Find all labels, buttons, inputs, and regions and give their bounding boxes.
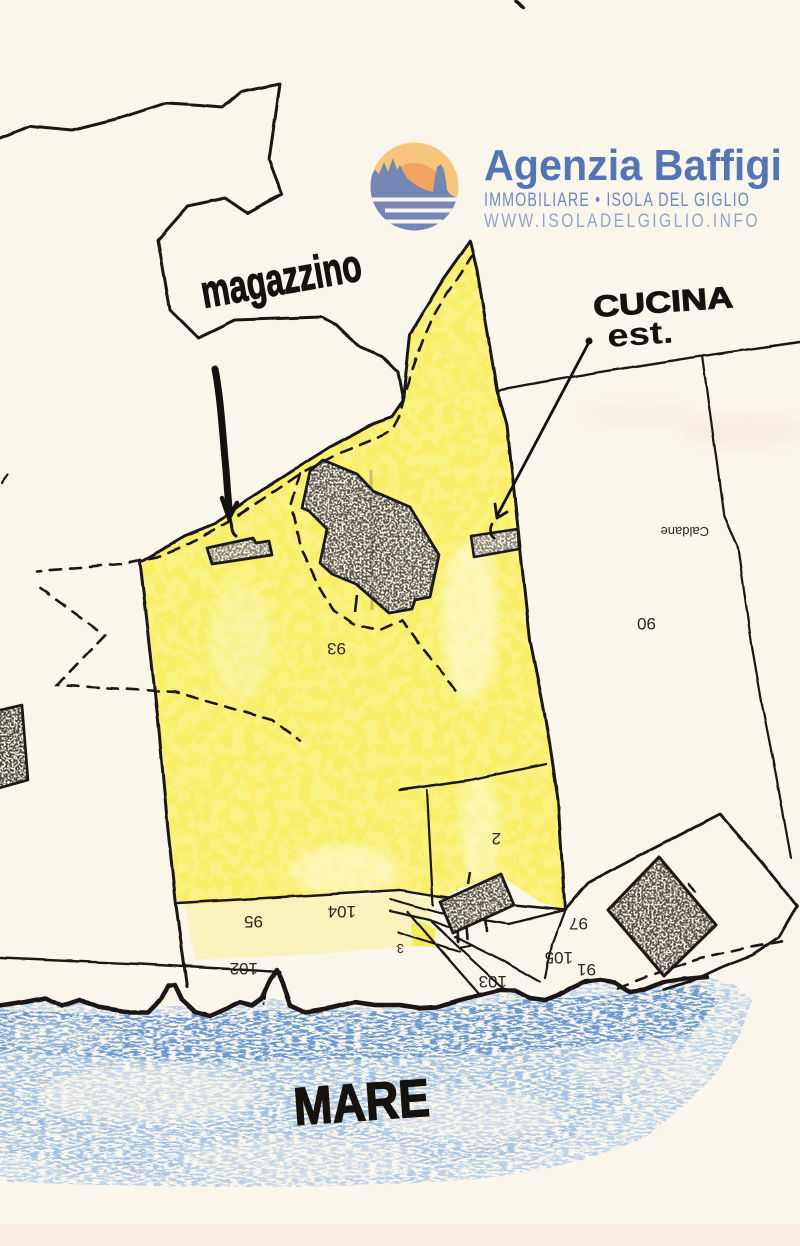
svg-text:90: 90 — [637, 614, 656, 633]
svg-text:WWW.ISOLADELGIGLIO.INFO: WWW.ISOLADELGIGLIO.INFO — [484, 210, 760, 232]
svg-text:95: 95 — [244, 912, 263, 931]
svg-text:est.: est. — [606, 313, 674, 354]
svg-text:97: 97 — [569, 914, 588, 933]
svg-text:Caldane: Caldane — [661, 524, 709, 539]
svg-text:105: 105 — [545, 948, 573, 967]
svg-text:3: 3 — [397, 941, 404, 956]
svg-text:2: 2 — [492, 829, 501, 848]
svg-text:MARE: MARE — [292, 1069, 432, 1137]
svg-text:104: 104 — [328, 902, 356, 921]
svg-text:93: 93 — [327, 639, 346, 658]
svg-text:Agenzia Baffigi: Agenzia Baffigi — [484, 141, 782, 190]
svg-text:102: 102 — [230, 959, 258, 978]
svg-text:IMMOBILIARE • ISOLA DEL GIGLIO: IMMOBILIARE • ISOLA DEL GIGLIO — [484, 189, 750, 211]
svg-text:91: 91 — [577, 960, 596, 979]
svg-text:103: 103 — [479, 972, 507, 991]
